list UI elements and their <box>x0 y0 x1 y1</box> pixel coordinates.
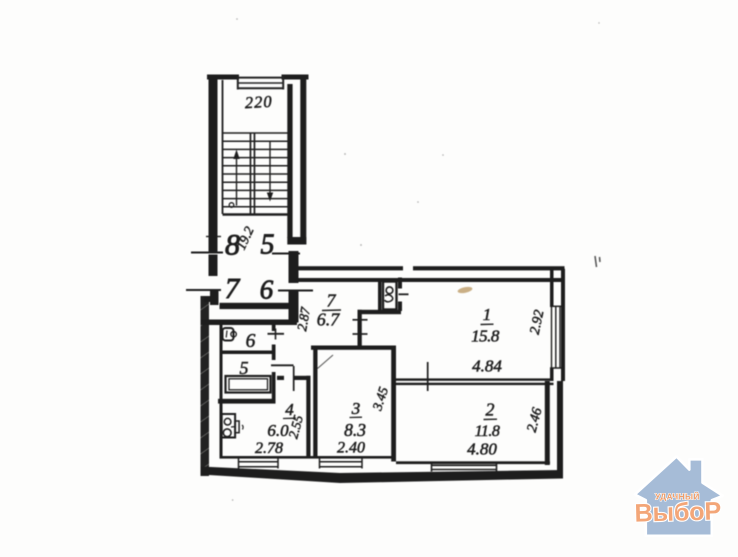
svg-text:6: 6 <box>246 331 256 352</box>
svg-text:4.84: 4.84 <box>472 357 502 376</box>
svg-text:5: 5 <box>240 358 249 378</box>
svg-text:6: 6 <box>260 275 274 305</box>
svg-text:6.7: 6.7 <box>317 310 341 330</box>
svg-text:15.8: 15.8 <box>471 327 500 346</box>
svg-text:7: 7 <box>225 273 241 305</box>
svg-text:1: 1 <box>483 305 492 324</box>
svg-text:220: 220 <box>244 92 273 112</box>
svg-text:2: 2 <box>486 400 495 420</box>
svg-text:5: 5 <box>261 230 275 261</box>
svg-text:3: 3 <box>351 399 361 418</box>
svg-text:8.3: 8.3 <box>344 420 366 440</box>
svg-text:7: 7 <box>327 291 337 311</box>
svg-text:11.8: 11.8 <box>475 423 500 440</box>
svg-text:2.40: 2.40 <box>337 440 365 457</box>
svg-text:4.80: 4.80 <box>467 440 497 459</box>
svg-text:2.78: 2.78 <box>255 440 283 457</box>
svg-text:ВыбоР: ВыбоР <box>634 497 721 527</box>
